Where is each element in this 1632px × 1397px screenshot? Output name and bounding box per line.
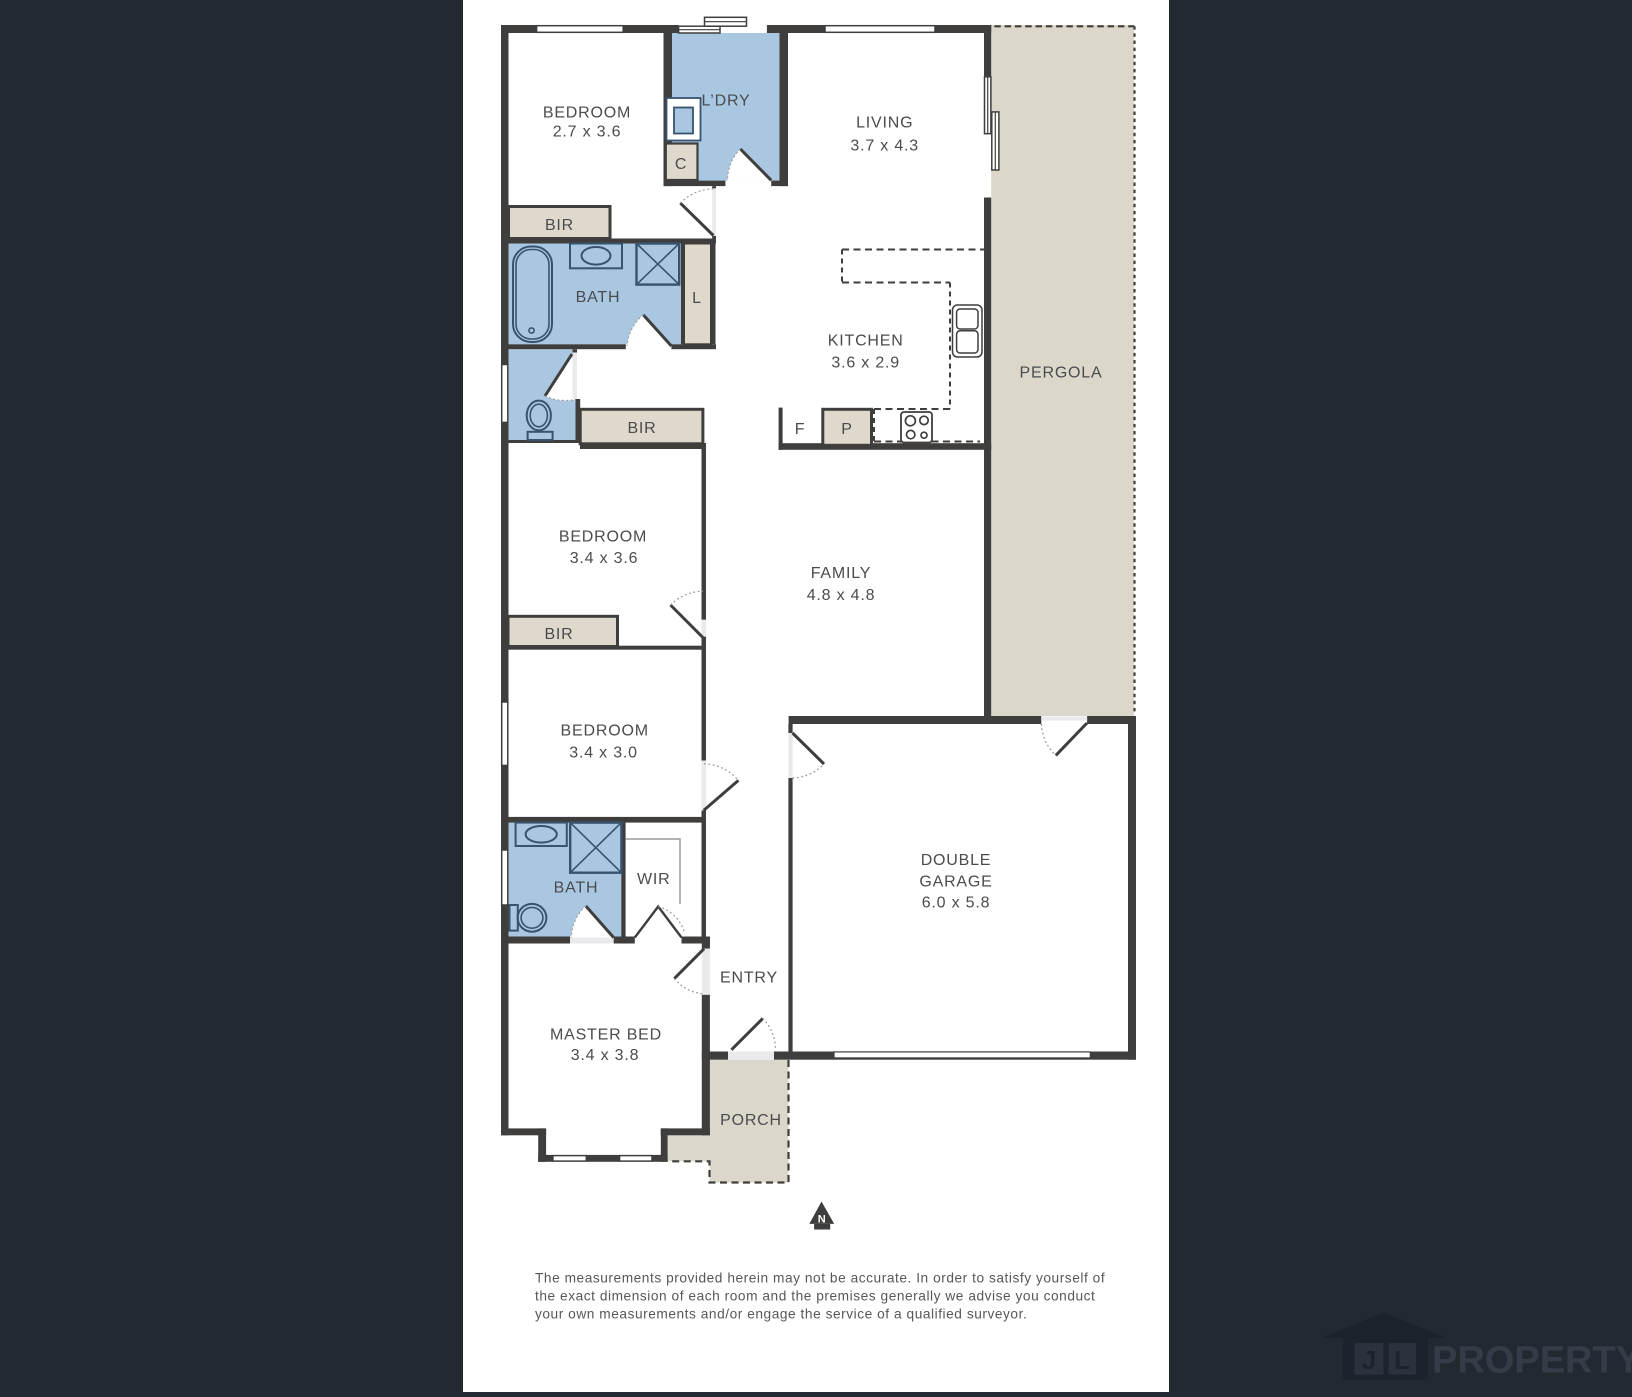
svg-text:3.4 x 3.8: 3.4 x 3.8 [571, 1047, 640, 1064]
svg-text:KITCHEN: KITCHEN [828, 332, 904, 349]
svg-text:BIR: BIR [544, 626, 573, 643]
svg-text:N: N [818, 1214, 826, 1226]
svg-text:3.4 x 3.0: 3.4 x 3.0 [569, 745, 638, 762]
svg-text:PERGOLA: PERGOLA [1020, 364, 1103, 381]
svg-text:J: J [1362, 1345, 1376, 1375]
svg-text:BIR: BIR [545, 217, 574, 234]
svg-text:3.7 x 4.3: 3.7 x 4.3 [850, 137, 919, 154]
svg-text:BATH: BATH [576, 289, 621, 306]
svg-text:3.4 x 3.6: 3.4 x 3.6 [570, 550, 639, 567]
svg-text:BATH: BATH [554, 879, 599, 896]
svg-text:FAMILY: FAMILY [811, 565, 872, 582]
svg-text:your own measurements and/or e: your own measurements and/or engage the … [535, 1307, 1027, 1322]
svg-text:PORCH: PORCH [720, 1112, 782, 1129]
svg-text:ENTRY: ENTRY [720, 970, 778, 987]
svg-text:DOUBLE: DOUBLE [921, 852, 992, 869]
svg-text:The measurements provided here: The measurements provided herein may not… [535, 1271, 1105, 1286]
svg-text:C: C [675, 156, 687, 173]
svg-text:F: F [795, 421, 806, 438]
svg-text:3.6 x 2.9: 3.6 x 2.9 [831, 355, 900, 372]
svg-text:BEDROOM: BEDROOM [559, 528, 647, 545]
svg-text:L: L [1394, 1345, 1410, 1375]
svg-text:LIVING: LIVING [856, 114, 913, 131]
svg-text:2.7 x 3.6: 2.7 x 3.6 [553, 124, 622, 141]
svg-text:P: P [841, 421, 852, 438]
svg-text:GARAGE: GARAGE [919, 873, 992, 890]
svg-text:4.8 x 4.8: 4.8 x 4.8 [807, 587, 876, 604]
svg-text:6.0 x 5.8: 6.0 x 5.8 [922, 894, 991, 911]
svg-text:BIR: BIR [627, 420, 656, 437]
svg-text:WIR: WIR [637, 871, 671, 888]
svg-text:L’DRY: L’DRY [701, 92, 750, 109]
svg-text:BEDROOM: BEDROOM [561, 722, 649, 739]
svg-text:the exact dimension of each ro: the exact dimension of each room and the… [535, 1289, 1095, 1304]
svg-text:L: L [692, 290, 702, 307]
svg-text:BEDROOM: BEDROOM [543, 105, 631, 122]
svg-text:PROPERTY: PROPERTY [1432, 1340, 1632, 1382]
svg-text:MASTER BED: MASTER BED [550, 1026, 662, 1043]
